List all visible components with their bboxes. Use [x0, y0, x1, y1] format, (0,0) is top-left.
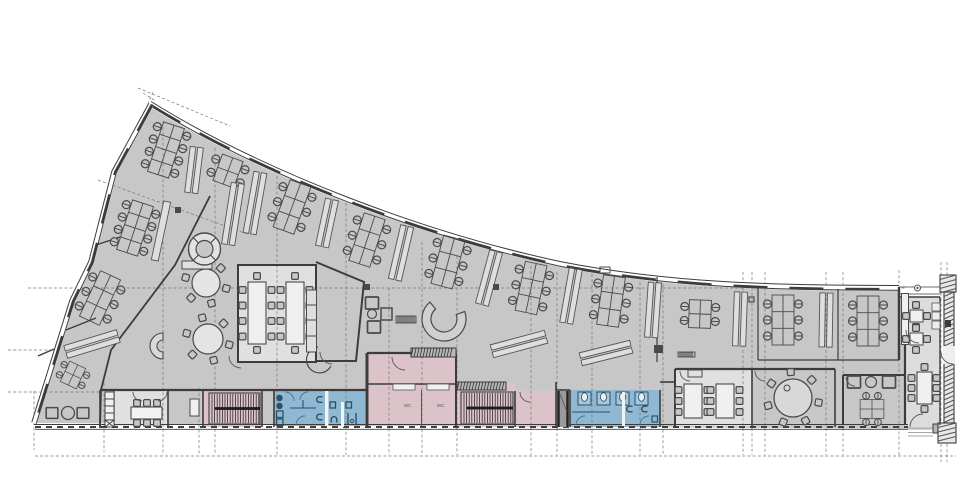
svg-text:WC: WC — [437, 403, 445, 408]
svg-text:WC: WC — [404, 403, 412, 408]
